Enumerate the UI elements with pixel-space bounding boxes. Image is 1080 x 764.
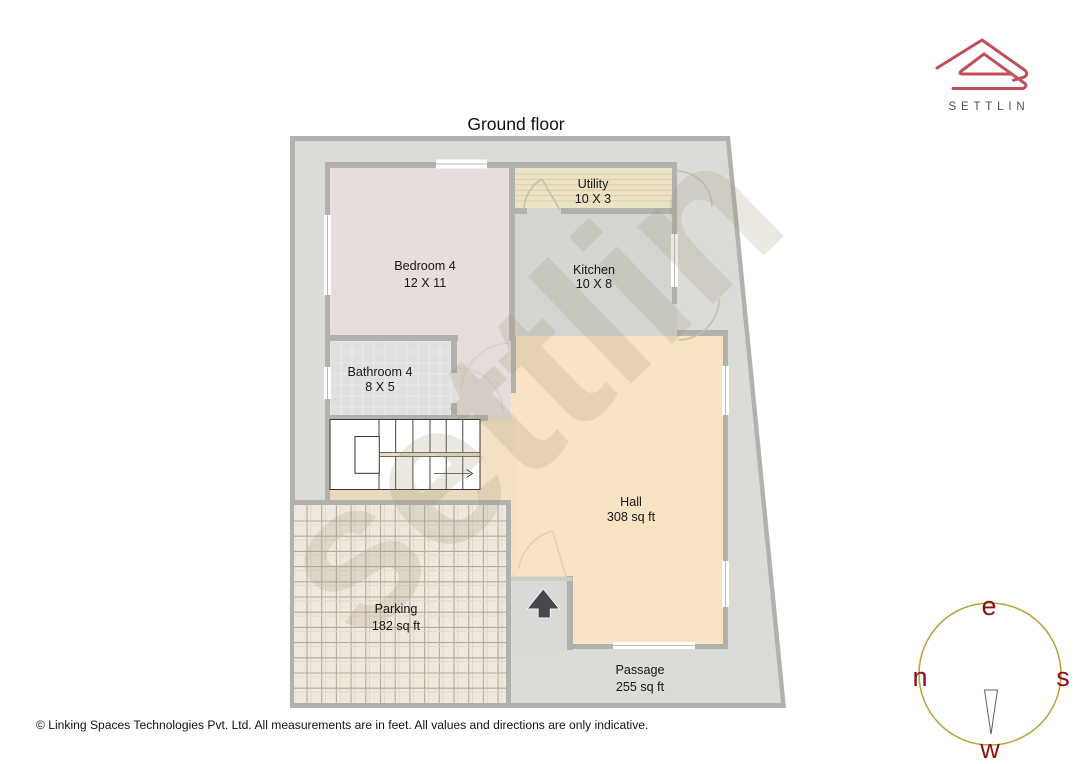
svg-text:12 X 11: 12 X 11 (404, 276, 446, 290)
svg-text:s: s (1056, 662, 1070, 692)
svg-text:Hall: Hall (620, 495, 642, 509)
svg-text:Passage: Passage (615, 663, 664, 677)
svg-text:Bathroom 4: Bathroom 4 (347, 365, 412, 379)
svg-text:Ground floor: Ground floor (467, 114, 564, 134)
svg-text:w: w (979, 734, 1000, 764)
svg-text:Bedroom 4: Bedroom 4 (394, 259, 456, 273)
svg-text:© Linking Spaces Technologies: © Linking Spaces Technologies Pvt. Ltd. … (36, 718, 648, 732)
svg-text:308 sq ft: 308 sq ft (607, 510, 656, 524)
svg-text:Parking: Parking (375, 602, 418, 616)
svg-text:Kitchen: Kitchen (573, 263, 615, 277)
svg-text:10 X 8: 10 X 8 (576, 277, 612, 291)
svg-text:182 sq ft: 182 sq ft (372, 619, 421, 633)
svg-text:10 X 3: 10 X 3 (575, 192, 611, 206)
svg-text:n: n (912, 662, 927, 692)
svg-text:Utility: Utility (578, 177, 609, 191)
svg-text:SETTLIN: SETTLIN (949, 101, 1030, 113)
svg-text:8 X 5: 8 X 5 (365, 380, 394, 394)
svg-text:e: e (981, 591, 996, 621)
svg-text:255 sq ft: 255 sq ft (616, 680, 665, 694)
